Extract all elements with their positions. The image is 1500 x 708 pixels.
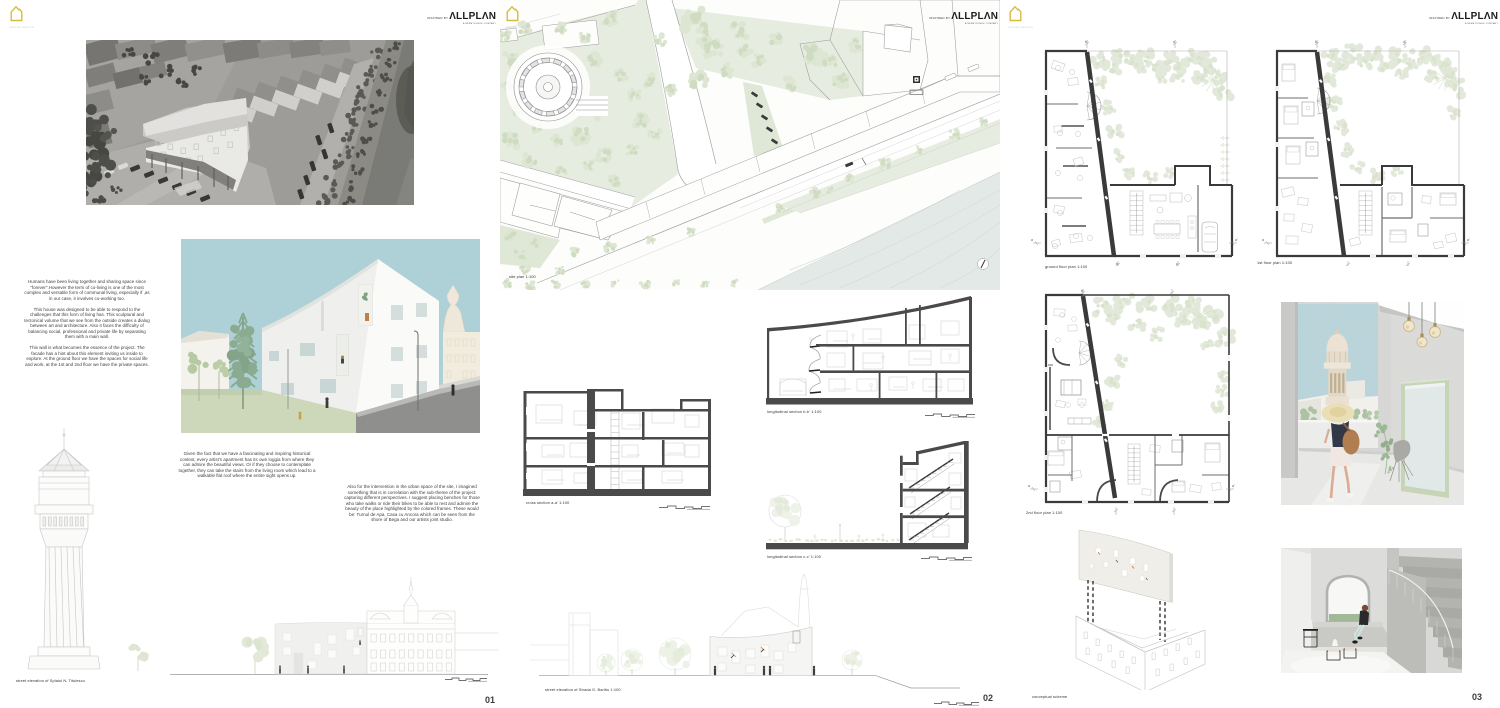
svg-text:c': c'	[1173, 40, 1176, 44]
svg-text:b': b'	[1315, 40, 1318, 44]
svg-text:c': c'	[1403, 40, 1406, 44]
svg-text:a': a'	[1235, 238, 1238, 242]
svg-text:c: c	[1176, 262, 1178, 266]
svg-text:a: a	[1262, 238, 1264, 242]
svg-text:a: a	[1028, 484, 1030, 488]
svg-text:a': a'	[1467, 238, 1470, 242]
svg-text:a': a'	[1232, 484, 1235, 488]
svg-text:a: a	[1031, 238, 1033, 242]
svg-text:b: b	[1116, 262, 1118, 266]
svg-text:b': b'	[1081, 289, 1084, 293]
svg-text:b': b'	[1085, 40, 1088, 44]
